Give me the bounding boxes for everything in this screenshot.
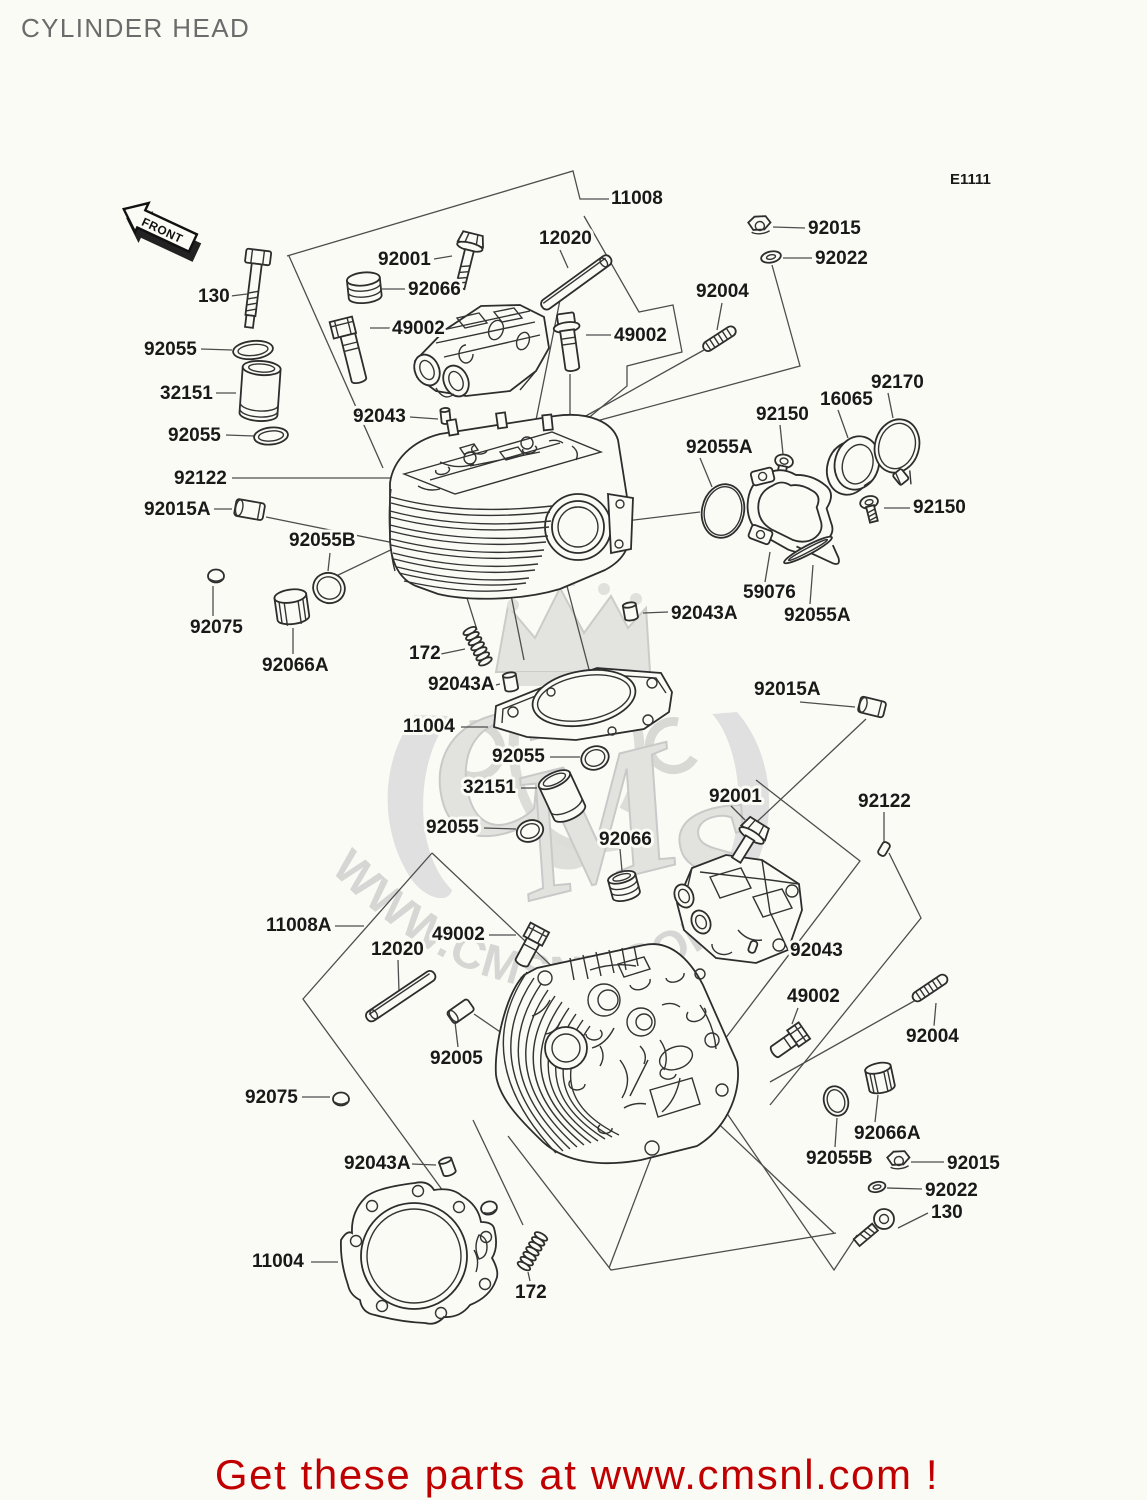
svg-text:92015: 92015 — [808, 218, 861, 239]
svg-text:92075: 92075 — [245, 1087, 298, 1108]
svg-text:92043: 92043 — [790, 940, 843, 961]
svg-text:92055: 92055 — [426, 817, 479, 838]
svg-text:92022: 92022 — [925, 1180, 978, 1201]
svg-text:92055B: 92055B — [289, 530, 356, 551]
svg-text:92055: 92055 — [168, 425, 221, 446]
svg-text:CYLINDER HEAD: CYLINDER HEAD — [21, 13, 250, 43]
svg-text:49002: 49002 — [432, 924, 485, 945]
svg-text:11008: 11008 — [611, 188, 663, 209]
svg-text:172: 172 — [409, 643, 441, 664]
svg-text:92055A: 92055A — [784, 605, 851, 626]
svg-text:92150: 92150 — [913, 497, 966, 518]
svg-text:92005: 92005 — [430, 1048, 483, 1069]
svg-text:92015A: 92015A — [754, 679, 821, 700]
svg-text:92150: 92150 — [756, 404, 809, 425]
svg-text:12020: 12020 — [371, 939, 424, 960]
svg-text:Get these parts at www.cmsnl.c: Get these parts at www.cmsnl.com ! — [215, 1451, 939, 1498]
svg-text:11004: 11004 — [403, 716, 455, 737]
svg-text:92066: 92066 — [599, 829, 652, 850]
svg-text:92004: 92004 — [696, 281, 749, 302]
svg-text:32151: 32151 — [160, 383, 213, 404]
svg-text:92043A: 92043A — [344, 1153, 411, 1174]
svg-text:92004: 92004 — [906, 1026, 959, 1047]
svg-text:92066: 92066 — [408, 279, 461, 300]
svg-text:92055: 92055 — [492, 746, 545, 767]
svg-text:92055B: 92055B — [806, 1148, 873, 1169]
svg-text:E1111: E1111 — [950, 171, 991, 188]
svg-text:11004: 11004 — [252, 1251, 304, 1272]
svg-text:92043A: 92043A — [428, 674, 495, 695]
svg-text:92001: 92001 — [378, 249, 431, 270]
svg-text:16065: 16065 — [820, 389, 873, 410]
svg-text:92066A: 92066A — [854, 1123, 921, 1144]
svg-text:12020: 12020 — [539, 228, 592, 249]
svg-text:92122: 92122 — [174, 468, 227, 489]
svg-text:92055A: 92055A — [686, 437, 753, 458]
svg-text:130: 130 — [931, 1202, 963, 1223]
svg-text:49002: 49002 — [614, 325, 667, 346]
svg-text:172: 172 — [515, 1282, 547, 1303]
svg-text:92066A: 92066A — [262, 655, 329, 676]
svg-text:130: 130 — [198, 286, 230, 307]
svg-text:59076: 59076 — [743, 582, 796, 603]
svg-text:49002: 49002 — [392, 318, 445, 339]
svg-text:32151: 32151 — [463, 777, 516, 798]
svg-text:92022: 92022 — [815, 248, 868, 269]
svg-text:92075: 92075 — [190, 617, 243, 638]
svg-text:92043: 92043 — [353, 406, 406, 427]
svg-text:92001: 92001 — [709, 786, 762, 807]
svg-text:92015: 92015 — [947, 1153, 1000, 1174]
svg-text:92055: 92055 — [144, 339, 197, 360]
svg-text:92122: 92122 — [858, 791, 911, 812]
svg-text:92170: 92170 — [871, 372, 924, 393]
svg-text:49002: 49002 — [787, 986, 840, 1007]
svg-text:11008A: 11008A — [266, 915, 332, 936]
svg-text:92043A: 92043A — [671, 603, 738, 624]
svg-text:92015A: 92015A — [144, 499, 211, 520]
